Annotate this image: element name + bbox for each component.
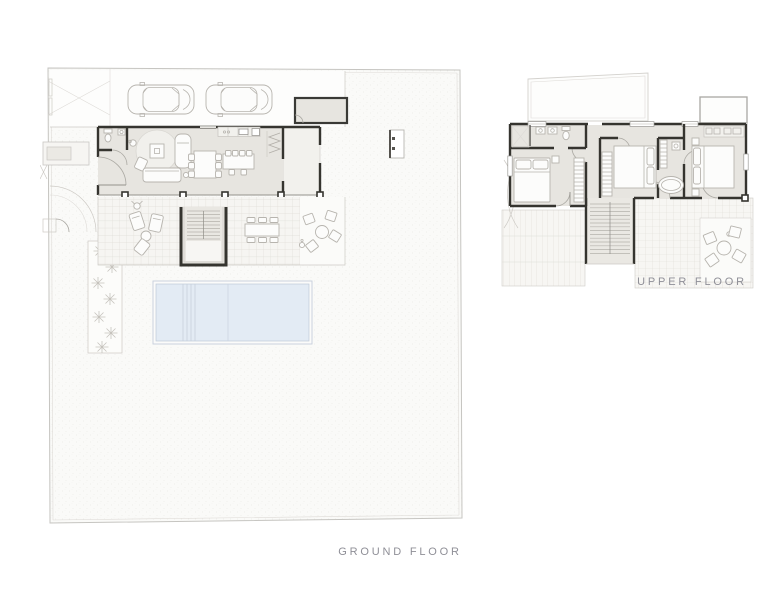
garden-structure — [390, 130, 404, 158]
swimming-pool — [153, 281, 312, 344]
upper-rooms — [508, 122, 748, 206]
ground-floor-plan — [40, 55, 470, 535]
outdoor-dining — [245, 218, 279, 243]
bed-middle — [614, 146, 656, 188]
floor-plan-sheet: GROUND FLOOR UPPER FLOOR — [0, 0, 783, 601]
car-icon — [128, 83, 194, 117]
storage-room — [295, 98, 347, 123]
bed-right — [692, 138, 734, 196]
terrace — [98, 197, 345, 265]
exterior-stairs — [181, 207, 226, 265]
car-icon — [206, 83, 272, 117]
upper-floor-plan — [498, 58, 763, 293]
ground-floor-label: GROUND FLOOR — [330, 546, 470, 558]
porch — [283, 127, 320, 195]
dining-table — [189, 151, 222, 178]
upper-floor-label: UPPER FLOOR — [637, 276, 747, 288]
roof-outline — [528, 73, 747, 123]
slatted-terrace — [502, 210, 585, 286]
staircase — [586, 198, 634, 264]
